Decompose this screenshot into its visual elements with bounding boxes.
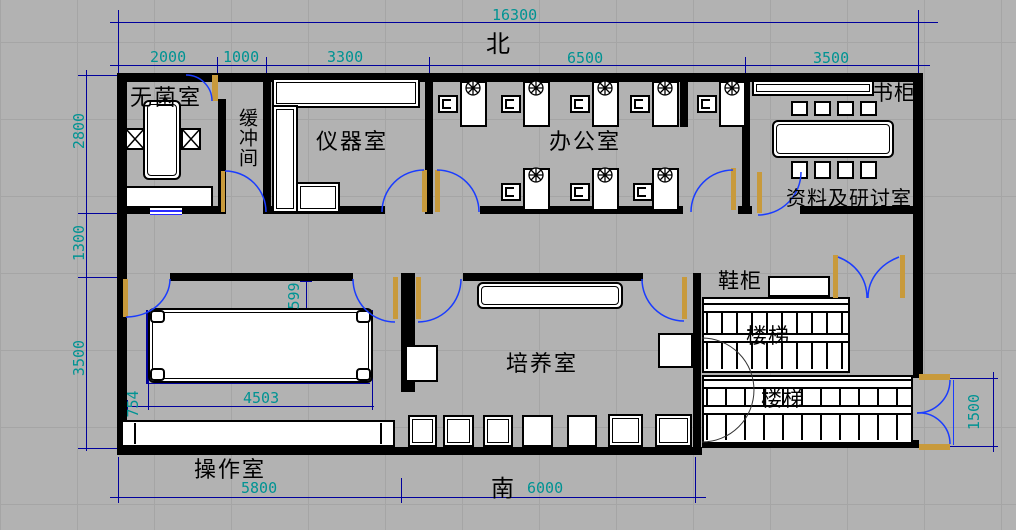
dim-text-599: 599 (285, 282, 303, 309)
wall-buffer-instrument (263, 73, 271, 214)
door-arc-culture-right (642, 279, 684, 321)
office-desk (592, 168, 619, 211)
instrument-counter-top (272, 78, 420, 108)
tick (429, 57, 430, 73)
tick (78, 75, 117, 76)
operation-corner-seat (150, 310, 165, 323)
door-arc-instrument (382, 170, 424, 212)
equipment-box (405, 345, 438, 382)
shoe-cabinet (768, 276, 830, 297)
dim-text-754: 754 (124, 390, 142, 417)
room-label-culture: 培养室 (506, 346, 578, 378)
equipment-box (522, 415, 553, 447)
tick (78, 277, 117, 278)
door-leaf (833, 255, 838, 298)
door-arc-office-left (437, 170, 479, 212)
door-leaf (393, 277, 398, 319)
door-arc-hall-right (868, 257, 899, 298)
fixture-label-shoe-cabinet: 鞋柜 (718, 265, 762, 295)
door-arc-buffer (225, 171, 266, 212)
office-chair (697, 95, 717, 113)
ext-line (401, 478, 402, 503)
door-leaf (435, 170, 440, 212)
tick (745, 57, 746, 73)
dim-text-2800: 2800 (70, 113, 88, 149)
table-shadow-line (148, 383, 370, 384)
seminar-chair (860, 161, 877, 179)
office-chair (633, 183, 653, 201)
bookcase (752, 80, 874, 96)
instrument-counter-bottom (296, 182, 340, 213)
door-leaf (682, 277, 687, 319)
ext-line (118, 10, 119, 73)
seminar-chair (837, 161, 854, 179)
wall-office-partition (680, 73, 688, 127)
equipment-box (483, 415, 513, 447)
wall-culture-stairs (693, 273, 701, 455)
door-arc-culture-left (418, 279, 461, 322)
door-arc-exit-bottom (917, 413, 950, 444)
dim-text-5800: 5800 (241, 479, 277, 497)
door-leaf (900, 255, 905, 298)
dim-text-6000: 6000 (527, 479, 563, 497)
operation-table (148, 308, 373, 383)
fixture-label-bookcase: 书柜 (872, 77, 916, 107)
office-desk (652, 168, 679, 211)
fixture-label-stairs-upper: 楼梯 (746, 320, 790, 350)
door-arc-hall-left (838, 257, 867, 298)
dim-text-3300: 3300 (327, 48, 363, 66)
north-label: 北 (486, 24, 512, 59)
door-leaf (919, 444, 950, 450)
tick (78, 213, 117, 214)
equipment-box (567, 415, 597, 447)
dim-text-6500: 6500 (567, 49, 603, 67)
door-leaf (919, 374, 950, 380)
dim-line-1500 (993, 372, 994, 452)
operation-corner-seat (356, 368, 371, 381)
office-desk (592, 81, 619, 127)
culture-table (477, 282, 623, 309)
seminar-chair (791, 101, 808, 116)
tick (78, 448, 117, 449)
dim-text-1300: 1300 (70, 225, 88, 261)
dim-text-1500: 1500 (965, 394, 983, 430)
ext-line (118, 457, 119, 503)
door-leaf (123, 279, 128, 317)
office-desk (523, 81, 550, 127)
door-leaf (416, 277, 421, 319)
door-leaf (422, 170, 427, 212)
ext-line (918, 10, 919, 73)
seminar-chair (814, 101, 831, 116)
equipment-box (408, 415, 437, 447)
tick (950, 446, 998, 447)
stairs-lower-flight (702, 375, 913, 448)
wall-east (913, 73, 923, 378)
room-label-office: 办公室 (549, 124, 621, 156)
equipment-box (443, 415, 474, 447)
sterile-equipment-box (181, 128, 201, 150)
operation-bench (121, 420, 395, 447)
dim-line-bottom (110, 497, 706, 498)
office-chair (630, 95, 650, 113)
tick (266, 57, 267, 73)
stair-rail (704, 405, 911, 415)
office-desk (523, 168, 550, 211)
sterile-equipment-box (125, 128, 145, 150)
office-chair (438, 95, 458, 113)
dim-text-3500-left: 3500 (70, 340, 88, 376)
equipment-box (608, 414, 643, 447)
seminar-chair (814, 161, 831, 179)
office-desk (719, 81, 746, 127)
ext-line (695, 457, 696, 503)
seminar-chair (791, 161, 808, 179)
dim-text-3500-top: 3500 (813, 49, 849, 67)
door-leaf (212, 75, 218, 101)
seminar-chair (837, 101, 854, 116)
sterile-bench (125, 186, 213, 208)
office-chair (501, 95, 521, 113)
room-label-archive: 资料及研讨室 (786, 182, 912, 211)
operation-corner-seat (150, 368, 165, 381)
dim-text-4503: 4503 (243, 389, 279, 407)
equipment-box (658, 333, 693, 368)
door-leaf (757, 172, 762, 213)
tick (950, 378, 998, 379)
dim-text-16300: 16300 (492, 6, 537, 24)
door-chord-line (953, 380, 954, 445)
fixture-label-stairs-lower: 楼梯 (761, 383, 805, 413)
room-label-buffer: 缓冲间 (234, 108, 261, 168)
door-arc-exit-top (917, 380, 950, 413)
operation-corner-seat (356, 310, 371, 323)
wall-culture-north (463, 273, 643, 281)
room-label-instrument: 仪器室 (316, 124, 388, 156)
cad-floorplan-canvas[interactable]: 北 南 无菌室 缓冲间 仪器室 办公室 书柜 资料及研讨室 鞋柜 楼梯 楼梯 培… (0, 0, 1016, 530)
door-arc-office-right (691, 170, 733, 212)
office-desk (652, 81, 679, 127)
sterile-table (143, 100, 181, 180)
stair-rail (704, 303, 848, 313)
room-label-sterile: 无菌室 (130, 80, 202, 112)
wall-operation-north (170, 273, 353, 281)
office-chair (570, 183, 590, 201)
conference-table (772, 120, 894, 158)
office-chair (501, 183, 521, 201)
tick (217, 57, 218, 73)
south-label: 南 (491, 469, 516, 503)
door-leaf (731, 168, 736, 210)
dim-text-1000: 1000 (223, 48, 259, 66)
door-leaf (221, 171, 225, 212)
office-chair (570, 95, 590, 113)
dim-text-2000: 2000 (150, 48, 186, 66)
instrument-counter-left (272, 105, 298, 213)
equipment-box (655, 414, 692, 447)
office-desk (460, 81, 487, 127)
stair-rail (704, 379, 911, 389)
